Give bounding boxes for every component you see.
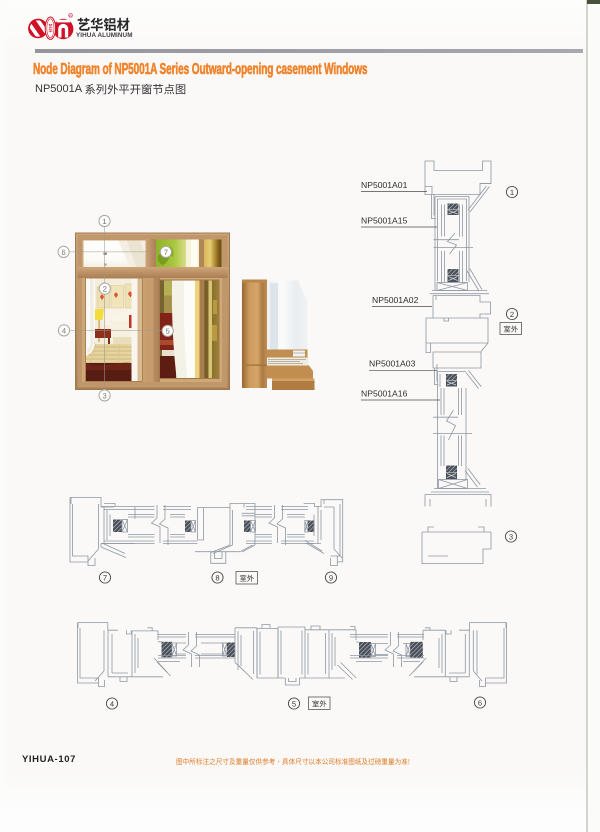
svg-text:NP5001A01: NP5001A01 [361,180,408,190]
svg-text:NP5001A03: NP5001A03 [369,359,416,369]
svg-text:NP5001A02: NP5001A02 [372,295,419,305]
svg-text:NP5001A15: NP5001A15 [361,216,408,226]
svg-text:NP5001A16: NP5001A16 [361,389,408,399]
svg-text:R: R [69,14,72,18]
